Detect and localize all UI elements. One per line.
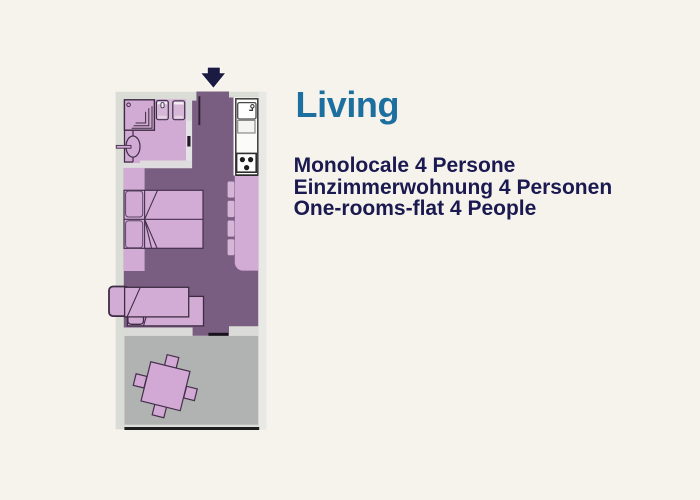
svg-text:One-rooms-flat 4 People: One-rooms-flat 4 People xyxy=(294,197,537,220)
svg-text:Einzimmerwohnung 4 Personen: Einzimmerwohnung 4 Personen xyxy=(294,176,613,199)
svg-text:Monolocale 4 Persone: Monolocale 4 Persone xyxy=(294,154,516,177)
svg-text:Living: Living xyxy=(296,84,400,125)
